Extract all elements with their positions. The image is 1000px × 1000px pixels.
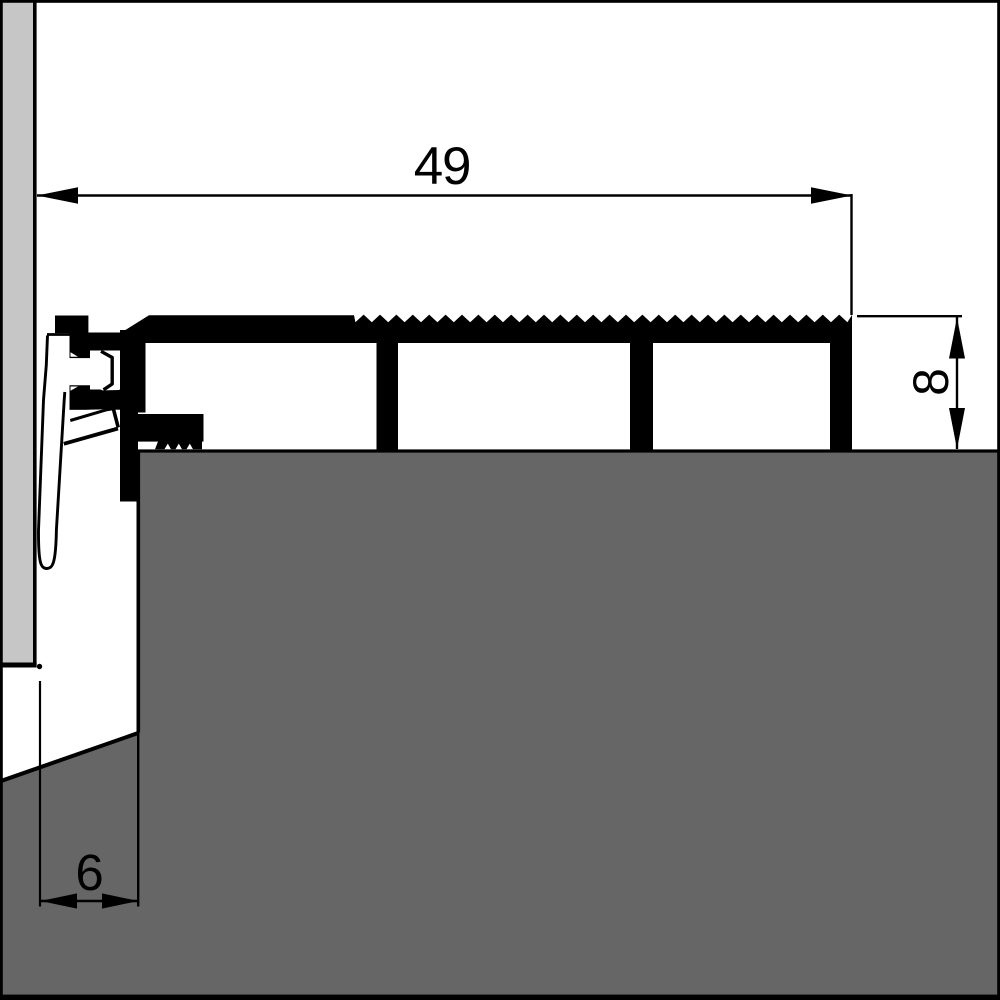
svg-text:6: 6 (75, 844, 103, 901)
svg-text:8: 8 (903, 368, 959, 396)
svg-text:49: 49 (414, 137, 471, 196)
